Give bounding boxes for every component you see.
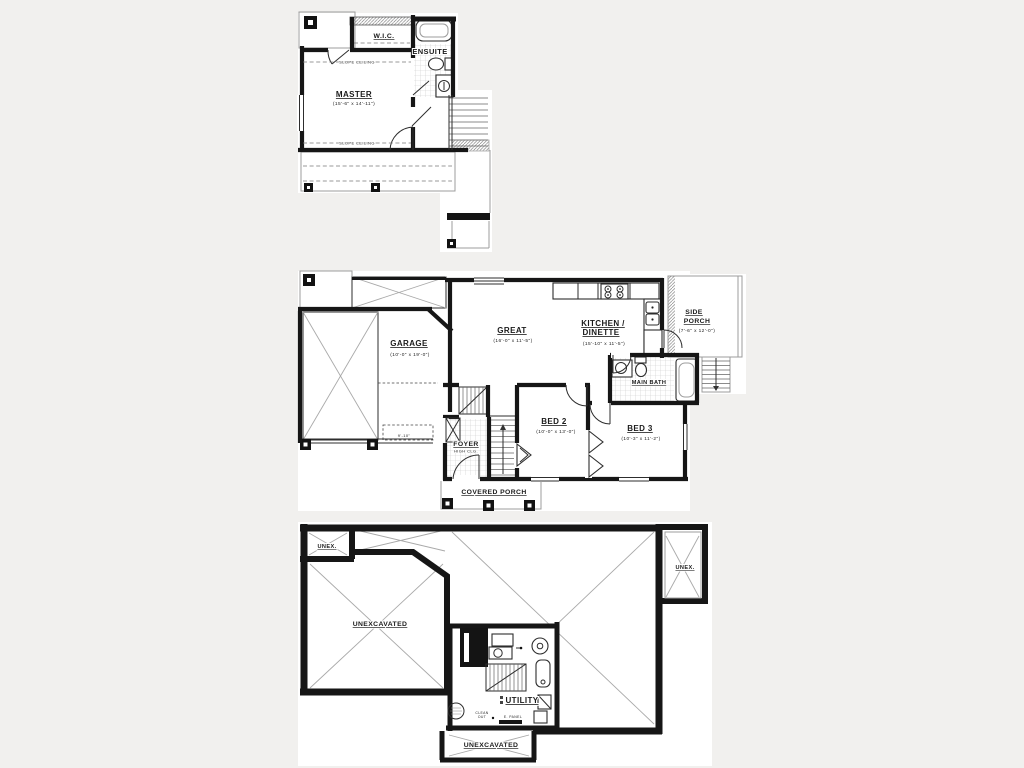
kitchen-dims: (15'-10" x 11'-5") <box>583 341 625 347</box>
bathtub-icon <box>416 20 452 41</box>
e-panel-label: E. PANEL <box>504 715 522 719</box>
slope-ceiling-top-label: SLOPE CEILING <box>339 60 375 65</box>
ensuite-bathroom <box>414 20 453 97</box>
washer-icon <box>492 634 513 646</box>
master-dims: (15'-6" x 14'-11") <box>333 101 375 107</box>
bed2-label: BED 2 <box>541 417 567 426</box>
floor-plan-drawing: W.I.C. ENSUITE MASTER (15'-6" x 14'-11")… <box>0 0 1024 768</box>
floor-plan-page: W.I.C. ENSUITE MASTER (15'-6" x 14'-11")… <box>0 0 1024 768</box>
basement-plan: UNEX. UNEX. UNEXCAVATED UTILITY UNEXCAVA… <box>298 522 712 766</box>
garage-dims: (10'-0" x 19'-0") <box>390 352 430 358</box>
unex-right-label: UNEX. <box>675 565 694 571</box>
kitchen-label-2: DINETTE <box>582 328 619 337</box>
utility-label: UTILITY <box>505 696 538 705</box>
hot-water-tank-icon <box>532 638 548 654</box>
main-bath-area <box>612 357 697 401</box>
side-porch-label-2: PORCH <box>684 318 711 325</box>
slope-ceiling-bottom-label: SLOPE CEILING <box>339 141 375 146</box>
unexcavated-bottom-label: UNEXCAVATED <box>464 742 519 749</box>
bed2-dims: (10'-0" x 13'-0") <box>536 429 576 435</box>
master-window <box>297 95 306 131</box>
foyer-label: FOYER <box>453 441 478 448</box>
dryer-icon <box>489 647 512 659</box>
foyer-sub-label: HIGH CLG. <box>454 449 478 454</box>
electrical-panel-icon <box>499 720 522 724</box>
bed3-dims: (10'-3" x 11'-2") <box>621 436 660 442</box>
great-label: GREAT <box>497 326 526 335</box>
toilet-icon <box>429 58 444 70</box>
covered-porch-label: COVERED PORCH <box>461 489 526 496</box>
unex-left-label: UNEX. <box>317 544 336 550</box>
great-dims: (16'-0" x 11'-5") <box>493 338 532 344</box>
master-label: MASTER <box>336 90 372 99</box>
upper-floor-plan: W.I.C. ENSUITE MASTER (15'-6" x 14'-11")… <box>297 12 492 252</box>
unexcavated-label: UNEXCAVATED <box>353 621 408 628</box>
kitchen-label-1: KITCHEN / <box>581 319 625 328</box>
side-porch-label-1: SIDE <box>685 309 703 316</box>
fridge-icon <box>644 330 662 354</box>
garage-front-dim: 9'-10" <box>398 433 411 438</box>
toilet-icon <box>636 364 647 377</box>
main-floor-plan: GARAGE (10'-0" x 19'-0") GREAT (16'-0" x… <box>298 271 746 511</box>
ensuite-label: ENSUITE <box>412 47 447 56</box>
garage-label: GARAGE <box>390 339 428 348</box>
water-softener-icon <box>536 660 550 687</box>
clean-out-label-2: OUT <box>478 715 486 719</box>
main-bath-label: MAIN BATH <box>632 380 667 386</box>
bed3-label: BED 3 <box>627 424 653 433</box>
wic-label: W.I.C. <box>374 33 395 40</box>
side-porch-dims: (7'-6" x 12'-0") <box>679 328 715 334</box>
